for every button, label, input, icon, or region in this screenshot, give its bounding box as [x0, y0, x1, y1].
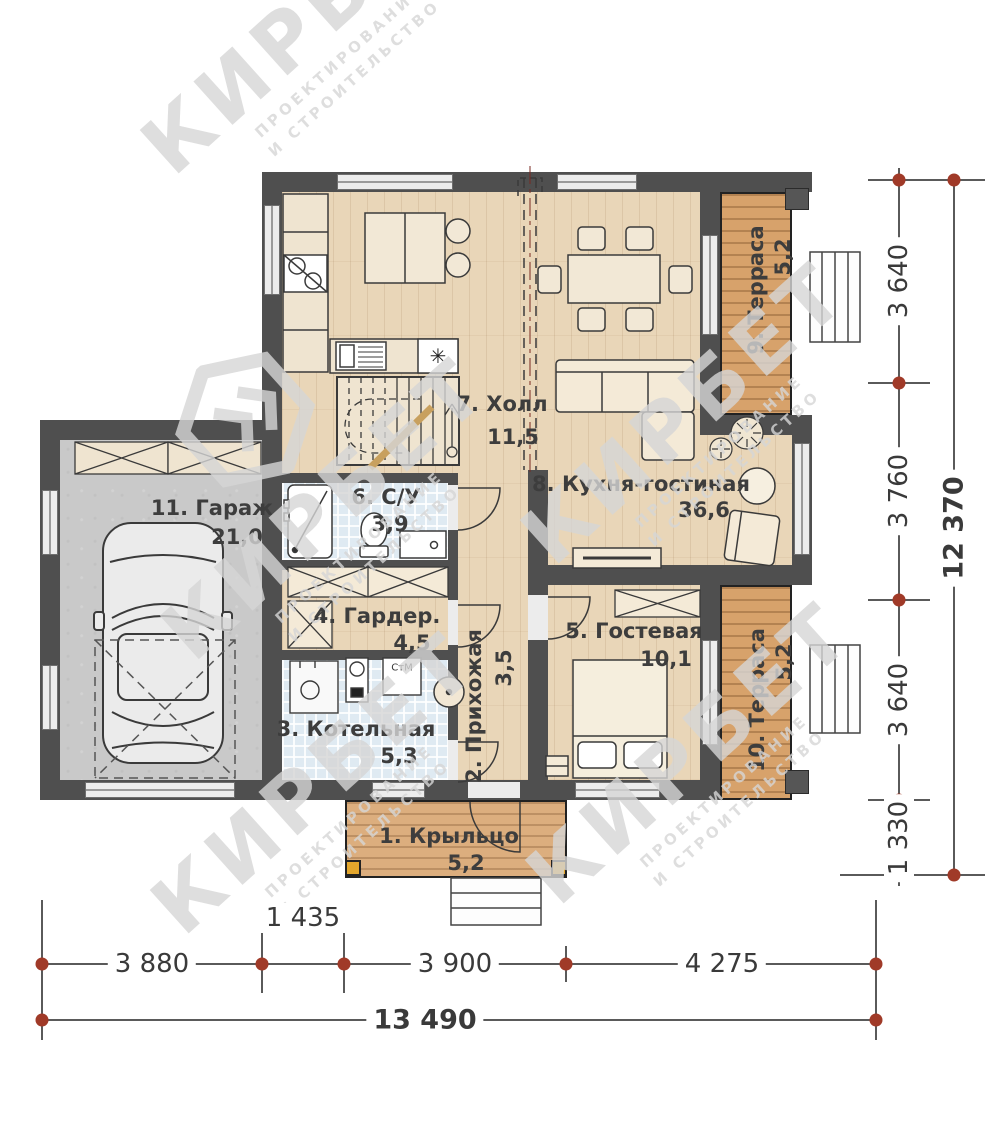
dim-dot — [893, 174, 906, 187]
partition-guest-top — [548, 565, 712, 585]
window-boiler — [372, 782, 425, 798]
dim-dot — [36, 1014, 49, 1027]
garage-area: 21,0 — [211, 525, 263, 549]
terrace-top-post — [785, 188, 809, 210]
dim-right-1: 3 760 — [884, 447, 914, 535]
window-terrace-bottom — [702, 640, 718, 745]
boiler-area: 5,3 — [380, 744, 417, 768]
terrace-top-area: 5,2 — [771, 238, 795, 275]
dim-dot — [893, 377, 906, 390]
dim-bottom-2: 3 900 — [411, 949, 499, 979]
partition-corridor-left-2 — [448, 530, 458, 600]
terrace-bottom-name: 10. Терраса — [745, 628, 769, 772]
wardrobe-name: 4. Гардер. — [314, 604, 441, 628]
wardrobe-door-opening — [448, 600, 458, 645]
boiler-door-opening — [448, 740, 458, 780]
bathroom-area: 3,9 — [371, 512, 408, 536]
porch-name: 1. Крыльцо — [379, 824, 519, 848]
porch-area: 5,2 — [447, 851, 484, 875]
boiler-name: 3. Котельная — [277, 717, 436, 741]
window-garage-1 — [42, 490, 58, 555]
garage-wall-top — [40, 420, 262, 440]
dim-right-total: 12 370 — [939, 469, 970, 586]
floor-plan-canvas: 11. Гараж 21,0 7. Холл 11,5 8. Кухня-гос… — [0, 0, 1000, 1138]
wall-terrace-top-bottom — [700, 415, 812, 435]
window-top-2 — [557, 174, 637, 190]
kitchen-living-name: 8. Кухня-гостиная — [532, 472, 750, 496]
dim-dot — [870, 1014, 883, 1027]
fridge-icon: ✳ — [430, 344, 447, 368]
dim-bottom-1: 1 435 — [259, 903, 347, 933]
entrance-door-opening — [468, 782, 520, 798]
dim-tick-r0 — [868, 179, 985, 181]
window-garage-2 — [42, 665, 58, 730]
partition-corridor-left-1 — [448, 473, 458, 485]
dim-dot — [948, 174, 961, 187]
dim-right-0: 3 640 — [884, 237, 914, 325]
dim-right-3: 1 330 — [884, 794, 914, 882]
wall-terrace-bottom-top — [700, 565, 812, 585]
porch-steps — [451, 878, 541, 925]
window-kitchen-left — [264, 205, 280, 295]
guest-name: 5. Гостевая — [565, 619, 703, 643]
window-terrace-top — [702, 235, 718, 335]
dim-dot — [36, 958, 49, 971]
terrace-bottom-area: 5,2 — [772, 643, 796, 680]
washing-machine-label: СтМ — [391, 663, 412, 674]
window-top-1 — [337, 174, 453, 190]
terrace-top-name: 9. Терраса — [744, 225, 768, 354]
bathroom-door-opening — [448, 485, 458, 530]
dim-bottom-total: 13 490 — [366, 1005, 483, 1036]
partition-corridor-right-2 — [528, 640, 548, 780]
garage-concrete-floor — [60, 440, 262, 780]
kitchen-living-area: 36,6 — [678, 498, 730, 522]
terrace-top-steps — [810, 252, 860, 342]
hall-name: 7. Холл — [456, 392, 547, 416]
hall-area: 11,5 — [487, 425, 539, 449]
guest-door-opening — [528, 595, 548, 640]
window-bay — [794, 443, 810, 555]
terrace-bottom-post — [785, 770, 809, 794]
partition-corridor-left-3 — [448, 645, 458, 740]
garage-gate — [85, 782, 235, 798]
guest-area: 10,1 — [640, 647, 692, 671]
dim-dot — [256, 958, 269, 971]
dim-bottom-3: 4 275 — [678, 949, 766, 979]
garage-name: 11. Гараж — [151, 496, 273, 520]
dim-right-2: 3 640 — [884, 656, 914, 744]
dim-dot — [560, 958, 573, 971]
wardrobe-area: 4,5 — [393, 631, 430, 655]
window-guest — [575, 782, 660, 798]
hallway-name: 2. Прихожая — [462, 629, 486, 783]
dim-dot — [870, 958, 883, 971]
partition-bath-top — [282, 473, 458, 483]
dim-dot — [338, 958, 351, 971]
porch-post-left — [345, 860, 361, 876]
bathroom-name: 6. С/У — [351, 485, 420, 509]
terrace-bottom-steps — [810, 645, 860, 733]
porch-post-right — [551, 860, 567, 876]
partition-bath-bottom — [282, 560, 458, 570]
dim-bottom-0: 3 880 — [108, 949, 196, 979]
dim-dot — [893, 594, 906, 607]
dim-dot — [948, 869, 961, 882]
partition-wardrobe-bottom — [282, 650, 458, 660]
hallway-area: 3,5 — [492, 649, 516, 686]
